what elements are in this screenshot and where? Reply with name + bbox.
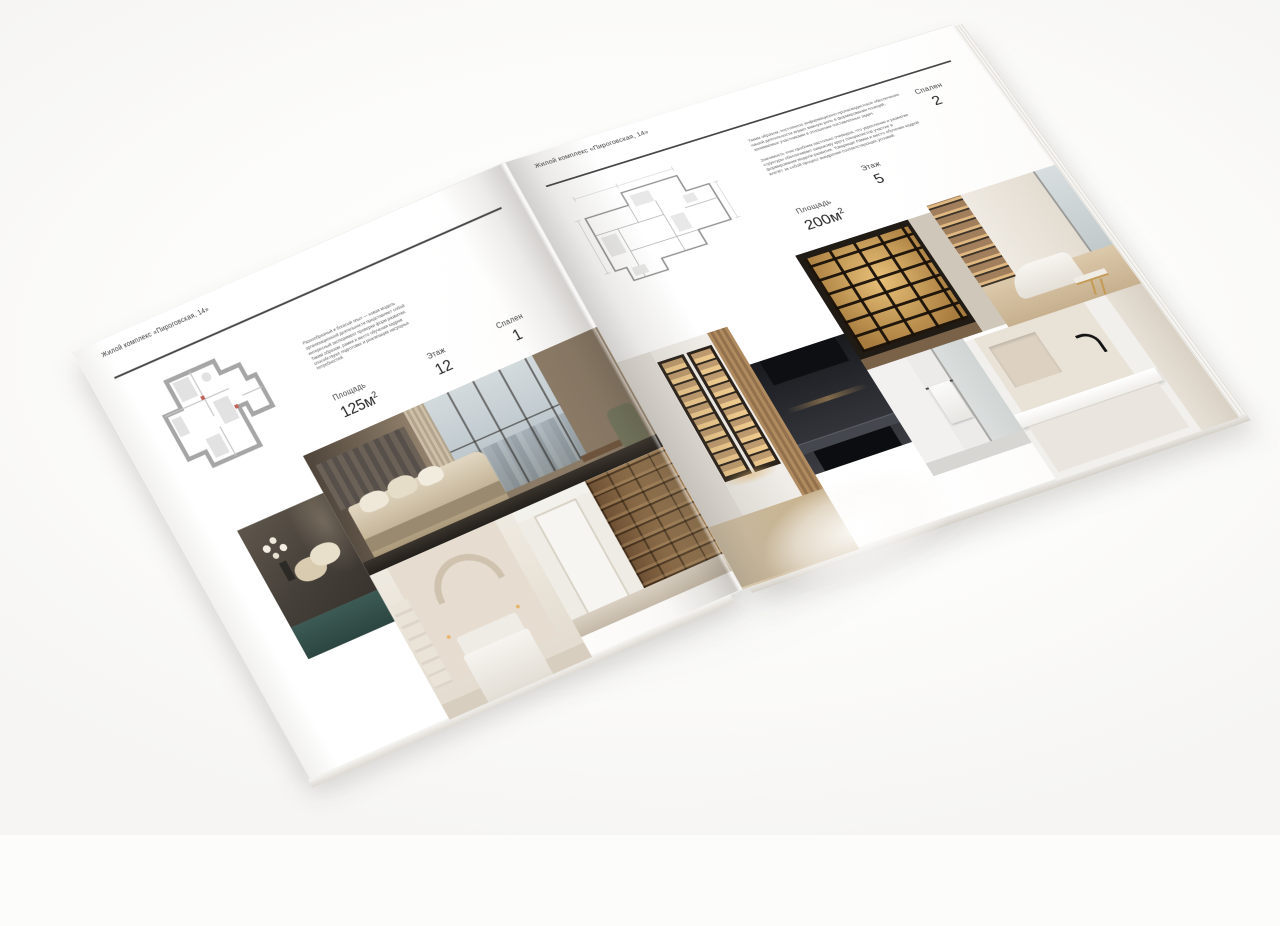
- floor-plan-200: [561, 154, 768, 304]
- floor-plan-125: [134, 340, 297, 487]
- spec-bedrooms: Спален 2: [898, 76, 971, 116]
- description-paragraph: Разнообразный и богатый опыт — новая мод…: [302, 295, 424, 372]
- flowers: [251, 528, 298, 572]
- spec-floor: Этаж 12: [406, 337, 476, 388]
- kitchen-hood: [759, 337, 849, 385]
- spec-bedrooms: Спален 1: [480, 305, 550, 356]
- kitchen-glow-strip: [786, 383, 869, 414]
- scene: Жилой комплекс «Пироговская, 14»: [0, 0, 1280, 835]
- teal-cabinet: [291, 590, 395, 660]
- spec-area: Площадь 200м2: [794, 185, 884, 234]
